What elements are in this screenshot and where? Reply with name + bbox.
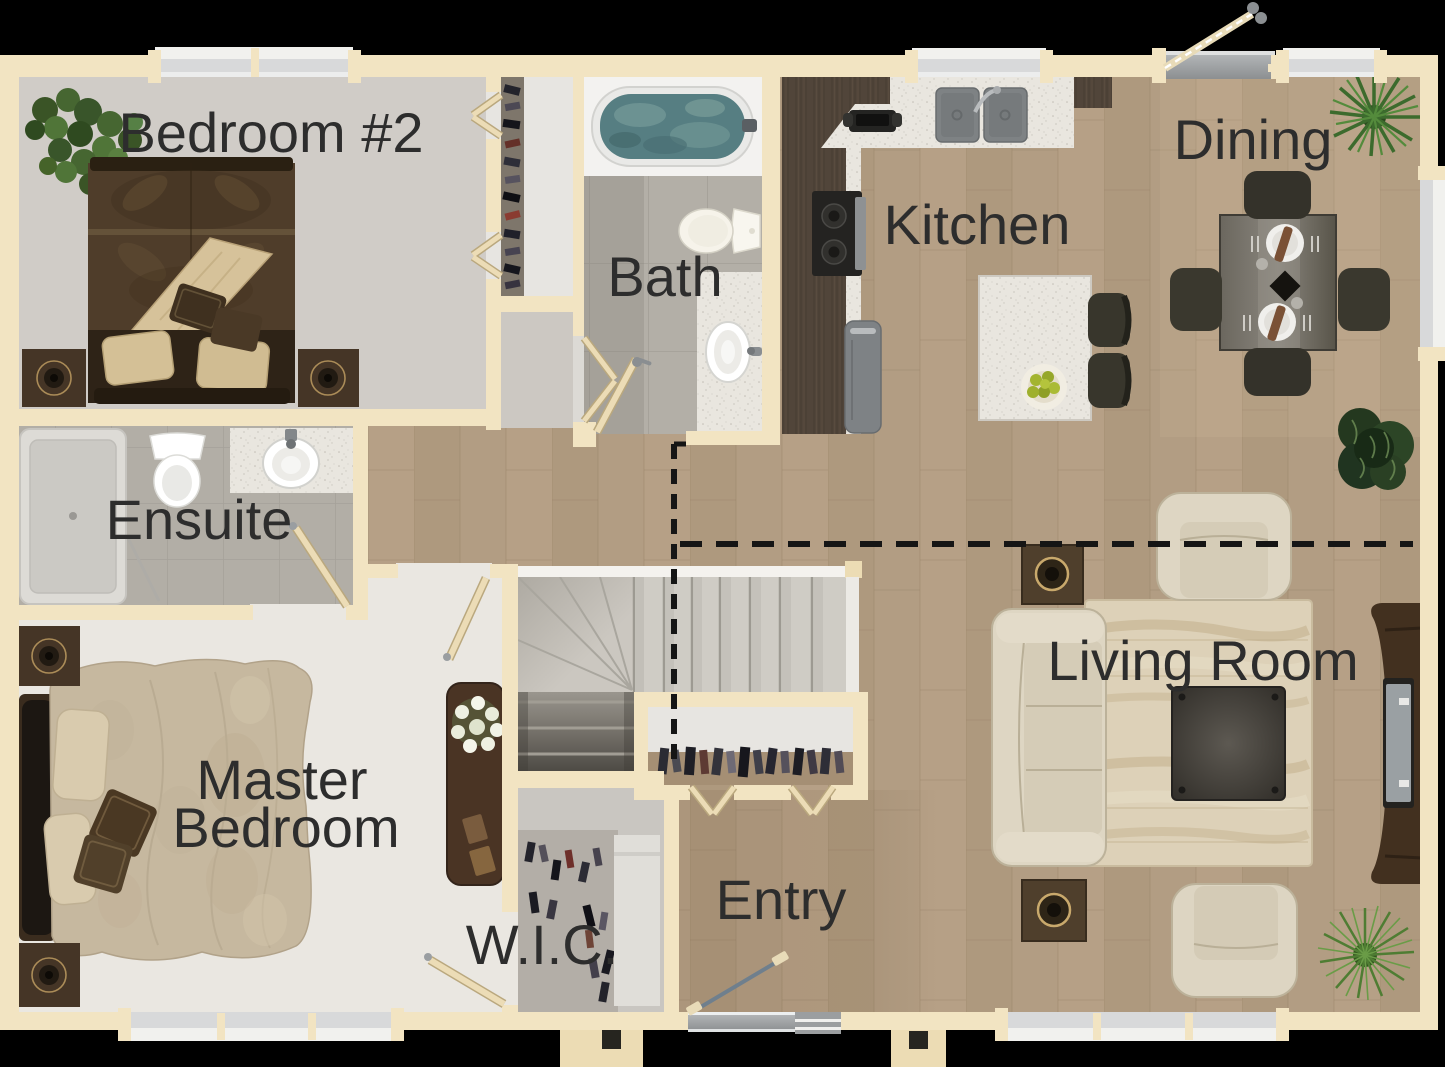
svg-text:Bedroom: Bedroom: [172, 796, 399, 859]
svg-text:Entry: Entry: [716, 868, 847, 931]
svg-text:W.I.C.: W.I.C.: [466, 913, 618, 976]
svg-text:Kitchen: Kitchen: [884, 193, 1071, 256]
svg-text:Ensuite: Ensuite: [106, 488, 293, 551]
svg-text:Bath: Bath: [607, 245, 722, 308]
svg-text:Bedroom #2: Bedroom #2: [118, 101, 423, 164]
svg-text:Dining: Dining: [1174, 108, 1333, 171]
svg-text:Living Room: Living Room: [1047, 629, 1358, 692]
